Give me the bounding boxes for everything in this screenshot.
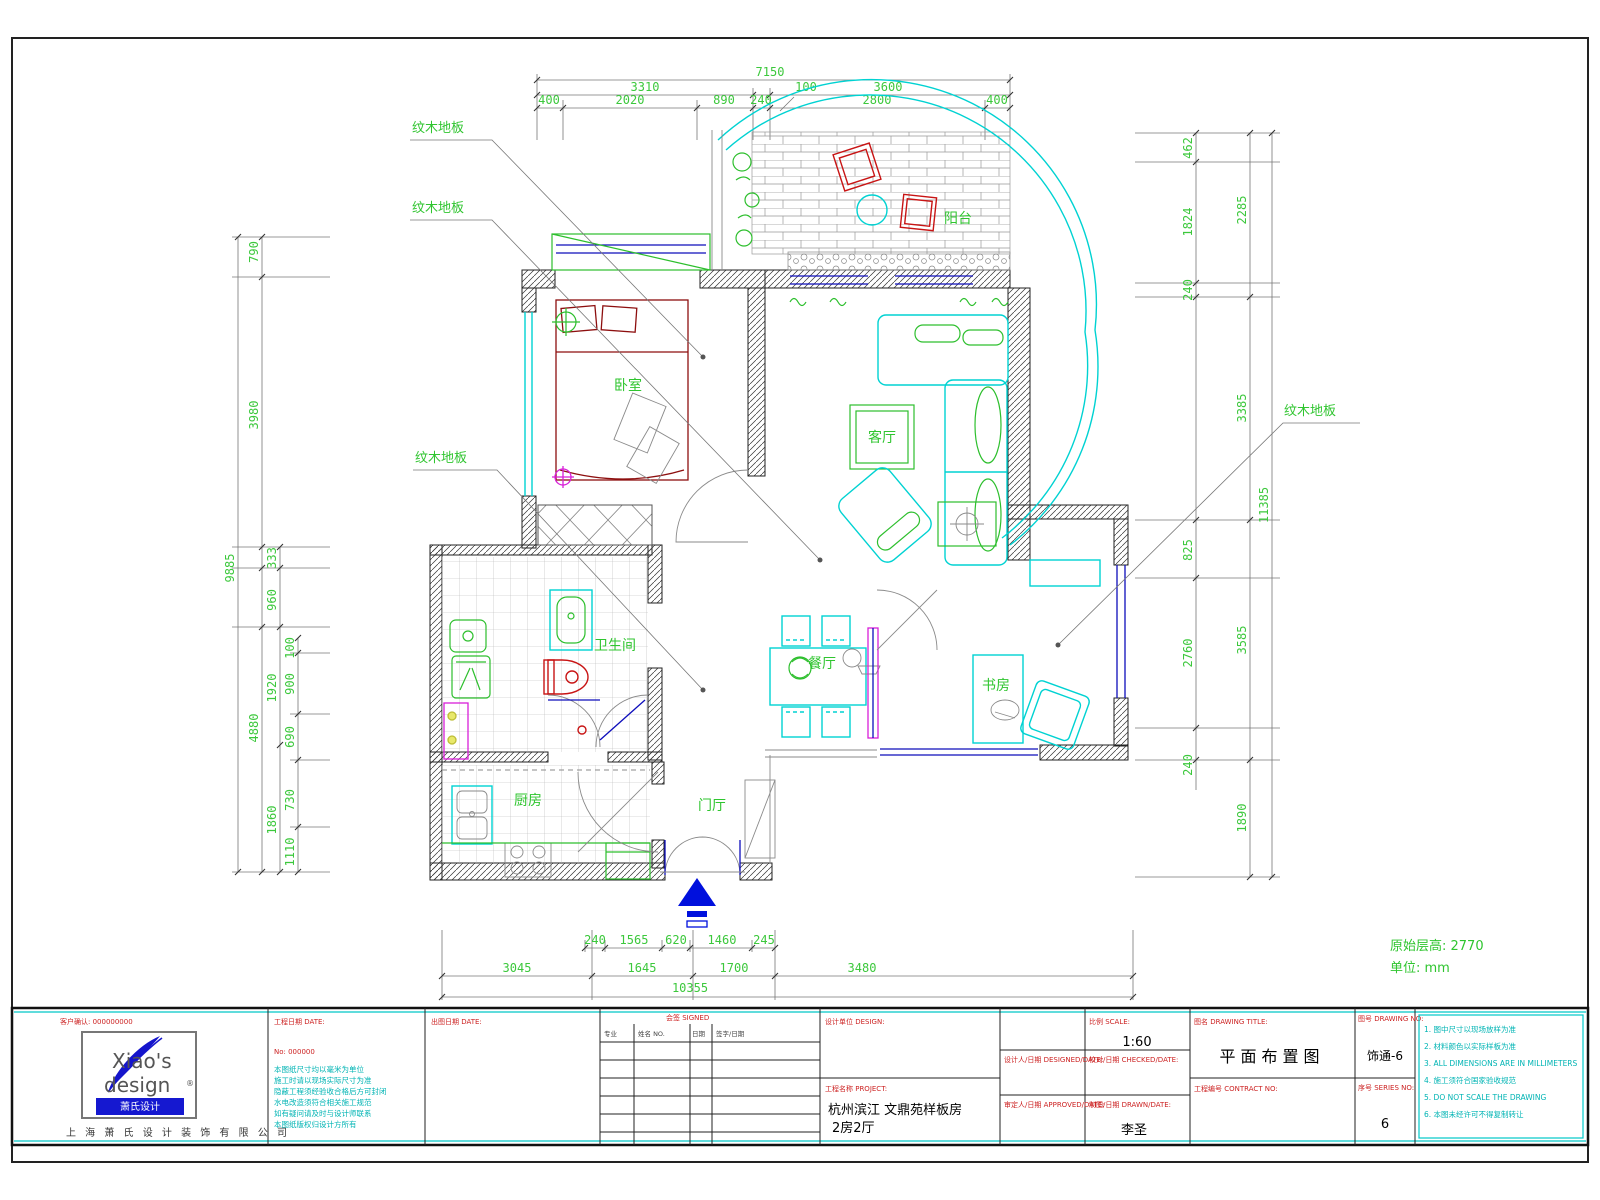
- drawer-name: 李圣: [1121, 1123, 1147, 1138]
- drawing-title-label: 图名 DRAWING TITLE:: [1194, 1017, 1268, 1026]
- unit-note: 单位: mm: [1390, 961, 1450, 976]
- svg-text:隐蔽工程须经验收合格后方可封闭: 隐蔽工程须经验收合格后方可封闭: [274, 1086, 387, 1096]
- svg-text:400: 400: [538, 93, 560, 107]
- svg-text:本图纸版权归设计方所有: 本图纸版权归设计方所有: [274, 1119, 357, 1129]
- dim-bottom-total: 10355: [672, 981, 708, 995]
- svg-text:3385: 3385: [1235, 394, 1249, 423]
- svg-text:900: 900: [283, 673, 297, 695]
- svg-text:240: 240: [584, 933, 606, 947]
- draw-label: 制图/日期 DRAWN/DATE:: [1089, 1100, 1171, 1109]
- dim-left-4880: 4880: [247, 714, 261, 743]
- svg-text:签字/日期: 签字/日期: [716, 1029, 745, 1038]
- leader-wood-floor-3: 纹木地板: [415, 451, 467, 466]
- entry-door: [660, 837, 745, 875]
- svg-text:日期: 日期: [692, 1030, 706, 1038]
- project-label: 工程名称 PROJECT:: [825, 1084, 887, 1093]
- svg-text:620: 620: [665, 933, 687, 947]
- armchair: [835, 464, 935, 566]
- project-name-line2: 2房2厅: [832, 1120, 875, 1136]
- svg-text:462: 462: [1181, 137, 1195, 159]
- svg-text:690: 690: [283, 726, 297, 748]
- svg-text:1110: 1110: [283, 838, 297, 867]
- dim-right-total: 11385: [1257, 487, 1271, 523]
- check-label: 校对/日期 CHECKED/DATE:: [1089, 1055, 1178, 1064]
- client-confirm-label: 客户确认: 000000000: [60, 1017, 133, 1026]
- leader-wood-floor-4: 纹木地板: [1284, 404, 1336, 419]
- project-date-label: 工程日期 DATE:: [274, 1017, 325, 1026]
- svg-text:3980: 3980: [247, 401, 261, 430]
- dimension-chain-left: 9885 790 3980 4880 333 960 1920 1860 100…: [223, 234, 330, 875]
- dining-room: 餐厅: [770, 616, 880, 738]
- title-block: 客户确认: 000000000 Xiao's design ® 萧氏设计 上 海…: [12, 1008, 1588, 1145]
- dining-label: 餐厅: [808, 656, 836, 672]
- kitchen-label: 厨房: [514, 793, 542, 809]
- study-door: [877, 590, 937, 650]
- plants: [790, 299, 1008, 306]
- sofa: [878, 315, 1008, 565]
- bedroom-label: 卧室: [614, 377, 642, 394]
- svg-text:240: 240: [1181, 279, 1195, 301]
- floor-target-bedroom: [552, 466, 574, 488]
- logo-banner-text: 萧氏设计: [120, 1100, 160, 1113]
- kitchen: 厨房: [442, 765, 658, 879]
- svg-text:4. 施工须符合国家验收规范: 4. 施工须符合国家验收规范: [1424, 1075, 1517, 1085]
- svg-text:2. 材料颜色以实际样板为准: 2. 材料颜色以实际样板为准: [1424, 1041, 1517, 1051]
- corner-note: 原始层高: 2770 单位: mm: [1390, 938, 1484, 976]
- entry-hall: 门厅: [660, 780, 775, 927]
- svg-text:1645: 1645: [628, 961, 657, 975]
- scale-label: 比例 SCALE:: [1089, 1017, 1130, 1026]
- svg-text:240: 240: [1181, 754, 1195, 776]
- shoe-cabinet: [745, 780, 775, 858]
- svg-text:1. 图中尺寸以现场放样为准: 1. 图中尺寸以现场放样为准: [1424, 1024, 1517, 1034]
- drawing-no-label: 图号 DRAWING NO:: [1358, 1015, 1423, 1023]
- svg-text:1565: 1565: [620, 933, 649, 947]
- wardrobe: [538, 505, 652, 545]
- dining-screen: [868, 628, 878, 738]
- svg-text:如有疑问请及时与设计师联系: 如有疑问请及时与设计师联系: [274, 1108, 372, 1118]
- bay-window: [552, 234, 710, 270]
- series-no-label: 序号 SERIES NO:: [1358, 1083, 1414, 1092]
- svg-text:100: 100: [283, 637, 297, 659]
- svg-text:2285: 2285: [1235, 196, 1249, 225]
- svg-text:1700: 1700: [720, 961, 749, 975]
- drawing-title-value: 平面布置图: [1219, 1047, 1324, 1066]
- balcony: 阳台: [712, 80, 1098, 545]
- entry-arrow: [678, 878, 716, 927]
- svg-text:水电改造须符合相关施工规范: 水电改造须符合相关施工规范: [274, 1097, 372, 1107]
- svg-text:3. ALL DIMENSIONS ARE IN MILLI: 3. ALL DIMENSIONS ARE IN MILLIMETERS: [1424, 1059, 1578, 1068]
- study-label: 书房: [982, 678, 1010, 694]
- issue-date-label: 出图日期 DATE:: [431, 1017, 482, 1026]
- company-name: 上 海 萧 氏 设 计 装 饰 有 限 公 司: [66, 1126, 290, 1139]
- desk-lamp: [995, 712, 1015, 718]
- living-room: 客厅: [790, 276, 1008, 566]
- svg-text:本图纸尺寸均以毫米为单位: 本图纸尺寸均以毫米为单位: [274, 1064, 364, 1074]
- project-name-line1: 杭州滨江 文鼎苑样板房: [828, 1102, 962, 1118]
- drawing-no-value: 饰通-6: [1367, 1049, 1403, 1063]
- logo-reg-mark: ®: [186, 1079, 194, 1088]
- svg-text:3045: 3045: [503, 961, 532, 975]
- balcony-label: 阳台: [944, 211, 972, 227]
- project-no: No: 000000: [274, 1048, 315, 1056]
- contract-no-label: 工程编号 CONTRACT NO:: [1194, 1084, 1278, 1093]
- sign-label: 会签 SIGNED: [666, 1013, 709, 1022]
- svg-text:1460: 1460: [708, 933, 737, 947]
- study-shelf: [1030, 560, 1100, 586]
- svg-text:1824: 1824: [1181, 208, 1195, 237]
- svg-text:1920: 1920: [265, 674, 279, 703]
- scale-value: 1:60: [1122, 1035, 1151, 1050]
- leader-wood-floor-1: 纹木地板: [412, 121, 464, 136]
- logo-word-2: design: [104, 1073, 170, 1097]
- dim-top-total: 7150: [756, 65, 785, 79]
- dim-left-total: 9885: [223, 554, 237, 583]
- svg-text:1890: 1890: [1235, 804, 1249, 833]
- bathroom-label: 卫生间: [594, 638, 636, 654]
- bedroom-door: [676, 470, 748, 542]
- svg-text:960: 960: [265, 589, 279, 611]
- leader-wood-floor-2: 纹木地板: [412, 201, 464, 216]
- study-desk: [973, 655, 1023, 743]
- svg-text:3585: 3585: [1235, 626, 1249, 655]
- svg-text:专业: 专业: [604, 1029, 618, 1038]
- design-unit-label: 设计单位 DESIGN:: [825, 1017, 885, 1026]
- original-height-note: 原始层高: 2770: [1390, 938, 1484, 954]
- svg-text:400: 400: [986, 93, 1008, 107]
- tea-set: [843, 649, 880, 674]
- study-chair-rotated: [1019, 679, 1091, 751]
- svg-text:3480: 3480: [848, 961, 877, 975]
- svg-text:245: 245: [753, 933, 775, 947]
- series-no-value: 6: [1381, 1117, 1389, 1132]
- svg-text:6. 本图未经许可不得复制转让: 6. 本图未经许可不得复制转让: [1424, 1109, 1524, 1119]
- dimension-chain-right: 462 1824 240 825 2760 240 2285 3385 3585…: [1135, 130, 1280, 880]
- entry-label: 门厅: [698, 798, 726, 814]
- svg-text:2020: 2020: [616, 93, 645, 107]
- svg-text:333: 333: [265, 547, 279, 569]
- dining-set: [770, 616, 866, 737]
- svg-text:5. DO NOT SCALE THE DRAWING: 5. DO NOT SCALE THE DRAWING: [1424, 1093, 1546, 1102]
- bathroom: 卫生间: [442, 557, 648, 759]
- study-chair: [991, 700, 1019, 720]
- svg-text:1860: 1860: [265, 806, 279, 835]
- dim-top-3310: 3310: [631, 80, 660, 94]
- svg-text:2760: 2760: [1181, 639, 1195, 668]
- svg-text:890: 890: [713, 93, 735, 107]
- dimension-chain-bottom: 240 1565 620 1460 245 3045 1645 1700 348…: [439, 930, 1136, 1000]
- floor-plan-sheet: 7150 3310 100 3600 400 2020 890 240 2800…: [0, 0, 1600, 1200]
- svg-text:825: 825: [1181, 539, 1195, 561]
- bed-throw: [614, 393, 679, 483]
- svg-text:730: 730: [283, 789, 297, 811]
- floor-lamp: [938, 502, 996, 546]
- svg-text:790: 790: [247, 241, 261, 263]
- svg-text:施工时请以现场实际尺寸为准: 施工时请以现场实际尺寸为准: [274, 1075, 372, 1085]
- dim-top-3600: 3600: [874, 80, 903, 94]
- logo-word-1: Xiao's: [112, 1049, 172, 1073]
- svg-text:姓名 NO.: 姓名 NO.: [638, 1029, 665, 1038]
- study-room: 书房: [877, 560, 1125, 755]
- living-label: 客厅: [868, 429, 896, 446]
